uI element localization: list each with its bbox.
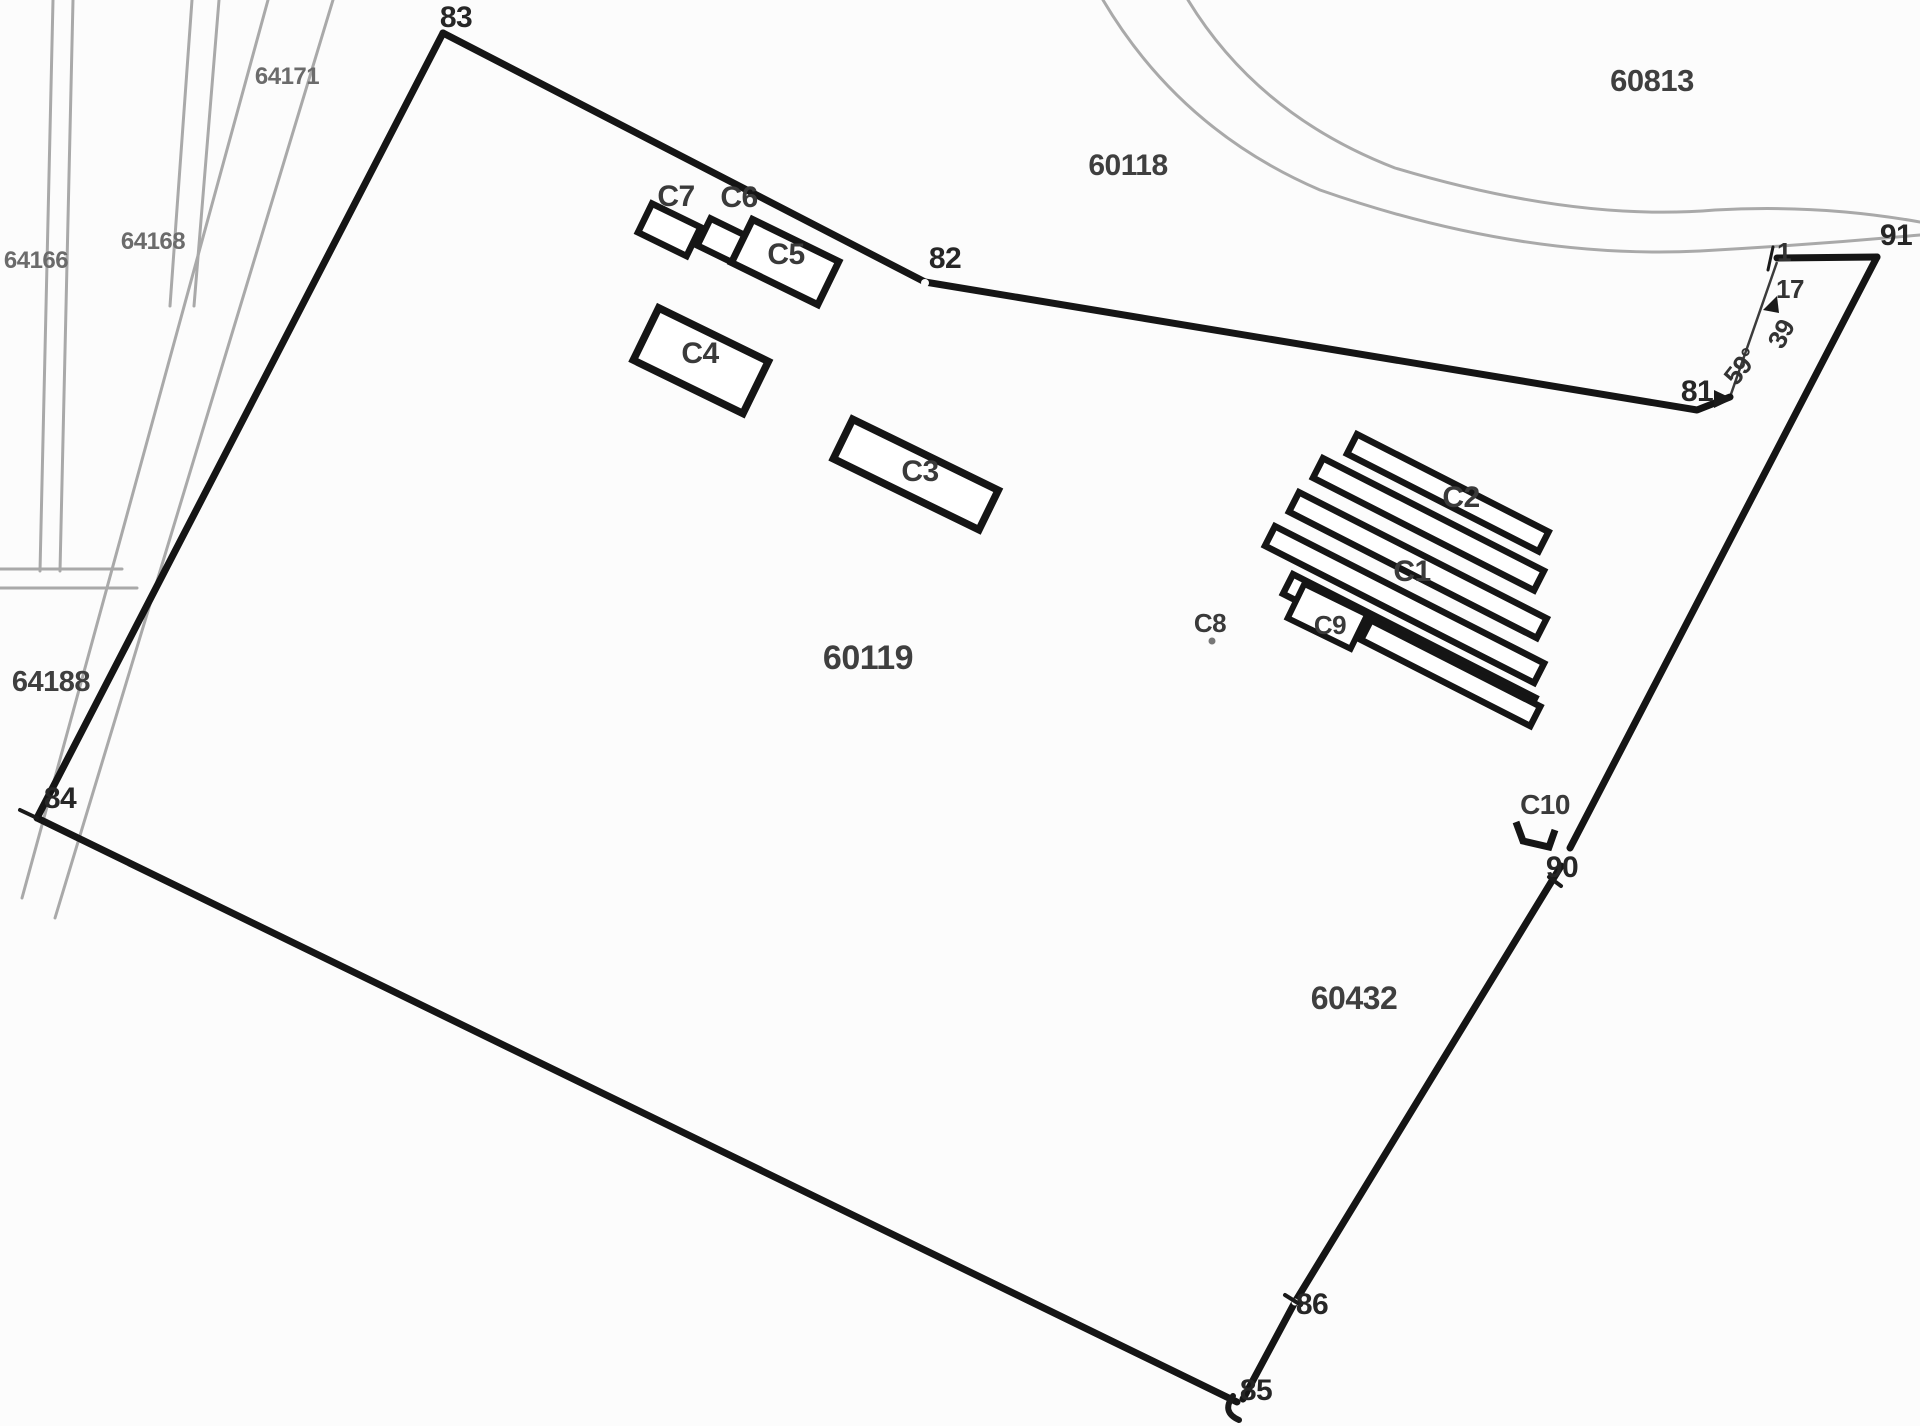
building-label-c3: C3: [901, 455, 938, 488]
measure-label-1: 1: [1777, 237, 1791, 267]
building-label-c6: C6: [720, 181, 757, 214]
parcel-label-64166: 64166: [4, 247, 68, 274]
point-label-86: 86: [1296, 1288, 1328, 1321]
building-label-c4: C4: [681, 337, 719, 370]
parcel-label-60432: 60432: [1311, 980, 1397, 1016]
boundary-1-91: [1777, 257, 1877, 258]
building-label-c8: C8: [1194, 608, 1226, 638]
point-gap-82: [921, 279, 929, 287]
building-label-c10: C10: [1520, 789, 1570, 820]
parcel-label-64188: 64188: [12, 666, 91, 698]
point-label-83: 83: [440, 1, 472, 34]
parcel-label-64171: 64171: [255, 63, 319, 90]
building-label-c1: C1: [1393, 555, 1430, 588]
parcel-label-60813: 60813: [1610, 63, 1694, 98]
point-label-91: 91: [1880, 219, 1912, 252]
cadastral-map: 64166 64168 64171 60118 60813 60119 6043…: [0, 0, 1920, 1426]
map-canvas: 64166 64168 64171 60118 60813 60119 6043…: [0, 0, 1920, 1426]
parcel-label-60119: 60119: [823, 639, 913, 677]
point-label-82: 82: [929, 242, 961, 275]
point-label-84: 84: [44, 782, 77, 815]
measure-label-17: 17: [1776, 274, 1804, 304]
building-label-c2: C2: [1442, 481, 1479, 514]
point-label-85: 85: [1240, 1374, 1272, 1407]
parcel-label-64168: 64168: [121, 228, 185, 255]
point-label-90: 90: [1546, 851, 1578, 884]
building-label-c7: C7: [657, 180, 694, 213]
map-background: [0, 0, 1920, 1426]
parcel-label-60118: 60118: [1088, 149, 1167, 182]
building-label-c5: C5: [767, 238, 804, 271]
building-c8-mark: [1209, 638, 1216, 645]
point-label-81: 81: [1681, 375, 1713, 408]
building-label-c9: C9: [1314, 610, 1346, 640]
